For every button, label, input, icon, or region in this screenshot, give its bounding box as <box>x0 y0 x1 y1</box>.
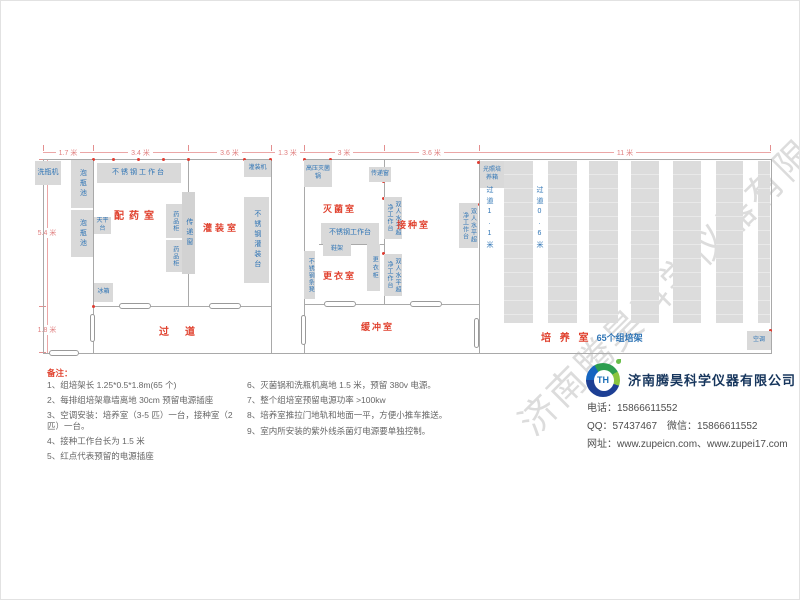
note-item: 8、培养室推拉门地轨和地面一平，方便小推车推送。 <box>247 410 477 420</box>
medicine-cabinet-2: 药品柜 <box>166 240 182 272</box>
room-label-prep: 配药室 <box>114 207 159 222</box>
company-name: 济南腾昊科学仪器有限公司 <box>628 370 796 389</box>
wall <box>43 353 772 354</box>
wall <box>241 306 272 307</box>
dim-tick <box>188 145 189 151</box>
soak-pool-1: 泡瓶池 <box>71 160 93 208</box>
wall <box>771 159 772 354</box>
room-label-changing: 更衣室 <box>323 269 356 282</box>
room-label-steril: 灭菌室 <box>323 202 356 215</box>
changing-locker: 更衣柜 <box>367 244 380 291</box>
note-item: 7、整个组培室预留电源功率 >100kw <box>247 395 477 405</box>
dim-top-5: 3 米 <box>304 148 384 157</box>
clean-bench-3: 双人水平超净工作台 <box>459 203 478 248</box>
medicine-cabinet-1: 药品柜 <box>166 204 182 238</box>
power-outlet-dot <box>162 158 165 161</box>
power-outlet-dot <box>137 158 140 161</box>
door <box>209 303 241 309</box>
note-item: 2、每排组培架靠墙离地 30cm 预留电源插座 <box>47 395 247 405</box>
bottle-washer: 洗瓶机 <box>35 161 61 185</box>
steel-filling-table: 不锈钢灌装台 <box>244 197 269 283</box>
wall <box>442 304 480 305</box>
wall <box>43 159 44 354</box>
shoe-rack: 鞋架 <box>323 244 351 256</box>
company-phone: 电话：15866611552 <box>587 399 677 414</box>
notes-block: 备注： 1、组培架长 1.25*0.5*1.8m(65 个) 2、每排组培架靠墙… <box>47 367 477 382</box>
clean-bench-2: 双人水平超净工作台 <box>384 254 402 296</box>
notes-left-column: 1、组培架长 1.25*0.5*1.8m(65 个) 2、每排组培架靠墙离地 3… <box>47 380 247 466</box>
soak-pool-2: 泡瓶池 <box>71 210 93 257</box>
culture-rack <box>716 161 743 323</box>
door <box>474 318 479 348</box>
aisle-label-wide: 过道1.1米 <box>484 186 494 266</box>
door <box>90 314 95 342</box>
power-outlet-dot <box>187 158 190 161</box>
dim-top-3: 3.6 米 <box>188 148 271 157</box>
steel-worktable-prep: 不锈钢工作台 <box>97 163 181 183</box>
culture-rack-count: 65个组培架 <box>597 331 643 344</box>
company-website: 网址：www.zupeicn.com、www.zupei17.com <box>587 435 788 450</box>
note-item: 5、红点代表预留的电源插座 <box>47 451 247 461</box>
room-label-buffer: 缓冲室 <box>361 320 394 333</box>
culture-rack <box>548 161 577 323</box>
culture-rack <box>758 161 770 323</box>
dim-tick <box>384 145 385 151</box>
dim-tick <box>271 145 272 151</box>
logo-monogram: TH <box>586 363 620 397</box>
room-label-corridor: 过道 <box>159 323 211 338</box>
company-qq-wechat: QQ：57437467 微信：15866611552 <box>587 417 757 432</box>
notes-right-column: 6、灭菌锅和洗瓶机离地 1.5 米，预留 380v 电源。 7、整个组培室预留电… <box>247 380 477 441</box>
culture-rack <box>673 161 701 323</box>
note-item: 4、接种工作台长为 1.5 米 <box>47 436 247 446</box>
culture-rack <box>631 161 659 323</box>
room-label-filling: 灌装室 <box>203 221 239 234</box>
power-outlet-dot <box>112 158 115 161</box>
power-outlet-dot <box>92 305 95 308</box>
wall <box>93 306 119 307</box>
door <box>119 303 151 309</box>
dim-top-7: 11 米 <box>479 148 771 157</box>
notes-title: 备注： <box>47 367 477 379</box>
note-item: 9、室内所安装的紫外线杀菌灯电源要单独控制。 <box>247 426 477 436</box>
wall <box>356 304 410 305</box>
autoclave: 高压灭菌锅 <box>304 160 332 187</box>
dim-top-2: 3.4 米 <box>93 148 188 157</box>
dim-top-4: 1.3 米 <box>271 148 304 157</box>
note-item: 6、灭菌锅和洗瓶机离地 1.5 米，预留 380v 电源。 <box>247 380 477 390</box>
door <box>324 301 356 307</box>
dim-tick <box>770 145 771 151</box>
wall <box>271 159 272 354</box>
steel-bench: 不锈钢条凳 <box>304 251 315 299</box>
room-label-inoculation: 接种室 <box>397 218 430 231</box>
door <box>410 301 442 307</box>
door <box>301 315 306 345</box>
dim-top-1: 1.7 米 <box>43 148 93 157</box>
culture-rack <box>504 161 533 323</box>
door <box>49 350 79 356</box>
fridge: 冰箱 <box>94 283 113 302</box>
air-conditioner: 空调 <box>747 331 771 350</box>
dim-tick <box>304 145 305 151</box>
wall <box>304 304 324 305</box>
wall <box>479 159 480 354</box>
note-item: 3、空调安装：培养室（3-5 匹）一台，接种室（2 匹）一台。 <box>47 410 247 430</box>
company-logo: TH <box>586 363 620 397</box>
dim-tick <box>479 145 480 151</box>
dim-tick <box>93 145 94 151</box>
aisle-label-narrow: 过道0.6米 <box>534 186 544 266</box>
room-label-culture: 培 养 室 <box>541 329 592 344</box>
pass-window-strip: 传递窗 <box>182 192 195 274</box>
dim-top-6: 3.6 米 <box>384 148 479 157</box>
floorplan-canvas: 济南腾昊科学仪器有限公司 1.7 米 3.4 米 3.6 米 1.3 米 3 米… <box>0 0 800 600</box>
dim-tick <box>43 145 44 151</box>
pass-window: 传递窗 <box>369 167 391 182</box>
culture-room-caption: 培 养 室 65个组培架 <box>541 329 643 344</box>
wall <box>479 159 772 160</box>
filling-machine: 灌装机 <box>244 160 271 177</box>
light-incubator: 光照培养箱 <box>480 161 504 188</box>
steel-worktable-steril: 不锈钢工作台 <box>321 223 379 244</box>
note-item: 1、组培架长 1.25*0.5*1.8m(65 个) <box>47 380 247 390</box>
wall <box>151 306 209 307</box>
balance-table: 天平台 <box>94 217 111 234</box>
culture-rack <box>589 161 618 323</box>
